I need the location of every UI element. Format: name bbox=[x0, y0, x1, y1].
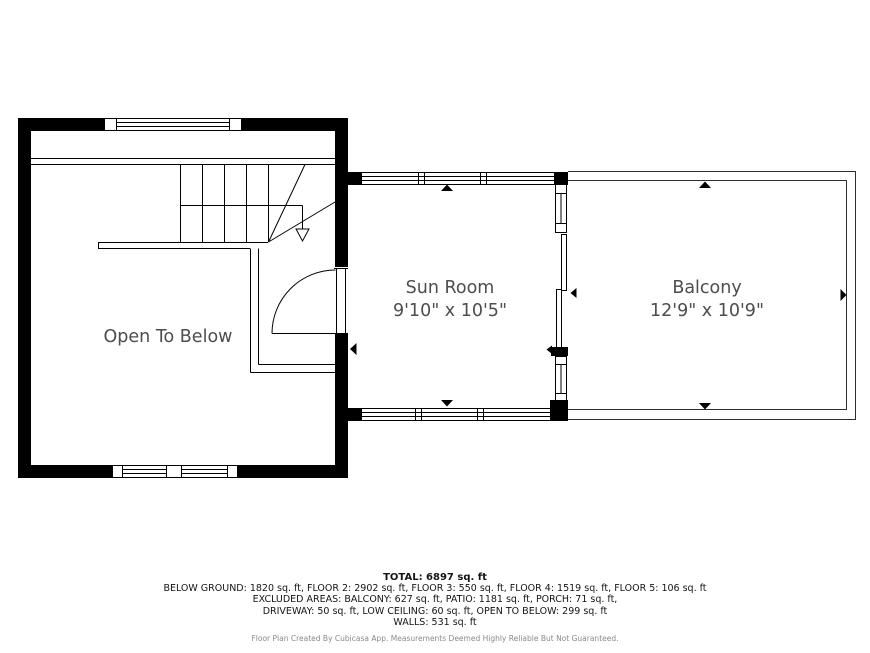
room-label-open-to-below: Open To Below bbox=[68, 326, 268, 349]
excluded-areas-line1: EXCLUDED AREAS: BALCONY: 627 sq. ft, PAT… bbox=[0, 594, 870, 605]
marker-balcony-top-icon bbox=[699, 182, 711, 189]
room-label-sun-room: Sun Room 9'10" x 10'5" bbox=[355, 277, 545, 323]
disclaimer: Floor Plan Created By Cubicasa App. Meas… bbox=[0, 634, 870, 643]
marker-balcony-right-icon bbox=[841, 289, 847, 301]
marker-sun-room-top-icon bbox=[441, 185, 453, 192]
sliding-door-panel-2 bbox=[557, 290, 562, 348]
staircase bbox=[181, 164, 336, 242]
door-opening bbox=[334, 267, 349, 334]
room-dimensions: 9'10" x 10'5" bbox=[355, 300, 545, 323]
room-dimensions: 12'9" x 10'9" bbox=[612, 300, 802, 323]
marker-sliding-door-icon bbox=[571, 288, 577, 298]
marker-door-block-icon bbox=[547, 346, 553, 355]
room-name: Balcony bbox=[612, 277, 802, 300]
floor-plan-page: Open To Below Sun Room 9'10" x 10'5" Bal… bbox=[0, 0, 870, 653]
marker-sun-room-left-icon bbox=[350, 343, 357, 355]
room-name: Open To Below bbox=[68, 326, 268, 349]
room-name: Sun Room bbox=[355, 277, 545, 300]
open-to-below-room-walls bbox=[18, 118, 348, 478]
window-top-left-room bbox=[104, 117, 242, 132]
walls-area: WALLS: 531 sq. ft bbox=[0, 617, 870, 628]
total-area: TOTAL: 6897 sq. ft bbox=[0, 572, 870, 583]
area-summary: TOTAL: 6897 sq. ft BELOW GROUND: 1820 sq… bbox=[0, 572, 870, 643]
marker-balcony-bottom-icon bbox=[699, 403, 711, 410]
landing-edge-lines bbox=[31, 159, 335, 165]
stair-railing bbox=[98, 243, 335, 373]
excluded-areas-line2: DRIVEWAY: 50 sq. ft, LOW CEILING: 60 sq.… bbox=[0, 606, 870, 617]
stairs-down-arrow-icon bbox=[296, 229, 309, 241]
floor-areas: BELOW GROUND: 1820 sq. ft, FLOOR 2: 2902… bbox=[0, 583, 870, 594]
window-bottom-left-room bbox=[112, 464, 238, 479]
marker-sun-room-bottom-icon bbox=[441, 400, 453, 407]
room-label-balcony: Balcony 12'9" x 10'9" bbox=[612, 277, 802, 323]
sliding-door-panel-1 bbox=[562, 235, 567, 291]
